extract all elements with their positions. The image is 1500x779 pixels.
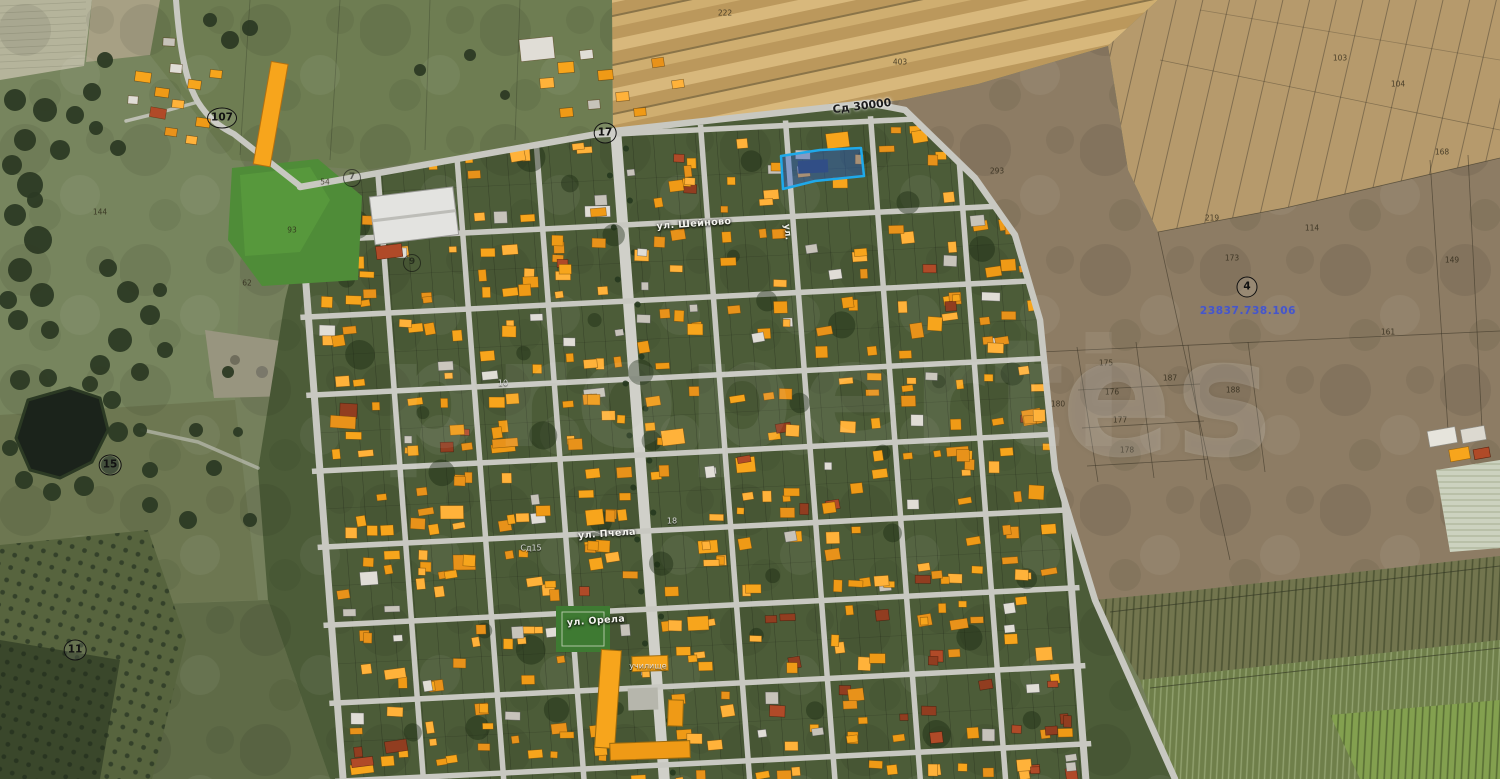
street-label-ул-орела: ул. Орела [567,613,626,628]
faint-num-label-177: 177 [1113,416,1127,425]
faint-num-label-180: 180 [1051,400,1065,409]
faint-num-label-219: 219 [1205,214,1219,223]
faint-num-label-187: 187 [1163,374,1177,383]
faint-num-label-161: 161 [1381,328,1395,337]
faint-num-label-144: 144 [93,208,107,217]
faint-num-label-149: 149 [1445,256,1459,265]
faint-num-label-104: 104 [1391,80,1405,89]
faint-num-label-403: 403 [893,58,907,67]
faint-num-label-93: 93 [287,226,297,235]
faint-num-label-176: 176 [1105,388,1119,397]
faint-num-label-103: 103 [1333,54,1347,63]
faint-num-label-62: 62 [242,279,252,288]
circle-label-17: 17 [594,123,617,144]
faint-num-label-175: 175 [1099,359,1113,368]
faint-num-label-54: 54 [320,178,330,187]
circle-label-11: 11 [64,640,87,661]
faint-num-label-188: 188 [1226,386,1240,395]
faint-num-label-114: 114 [1305,224,1319,233]
faint-num-label-173: 173 [1225,254,1239,263]
tiny-light-label-10: 10 [498,379,508,388]
map-labels-layer: 107171511479Сд 3000023837.738.106ул. Шей… [0,0,1500,779]
watermark-label-properti: properti [378,308,1133,482]
street-v-label-ул: ул. [781,224,793,241]
circle-label-4: 4 [1237,277,1258,298]
circle-faint-label-9: 9 [403,254,421,272]
faint-num-label-293: 293 [990,167,1004,176]
tiny-light-label-18: 18 [667,517,677,526]
street-label-ул-пчела: ул. Пчела [578,526,637,541]
circle-faint-label-7: 7 [343,169,361,187]
faint-num-label-178: 178 [1120,446,1134,455]
circle-label-107: 107 [207,108,237,129]
road-label-сд-30000: Сд 30000 [832,96,892,116]
street-label-ул-шейново: ул. Шейново [656,216,732,232]
tiny-light-label-училище: училище [629,662,666,671]
watermark-strong-label-es: es [1061,302,1275,494]
faint-num-label-222: 222 [718,9,732,18]
tiny-light-label-сд15: Сд15 [520,544,541,553]
cad-id-label-23837-738-106: 23837.738.106 [1200,305,1296,317]
faint-num-label-168: 168 [1435,148,1449,157]
map-viewport[interactable]: 107171511479Сд 3000023837.738.106ул. Шей… [0,0,1500,779]
circle-label-15: 15 [99,455,122,476]
